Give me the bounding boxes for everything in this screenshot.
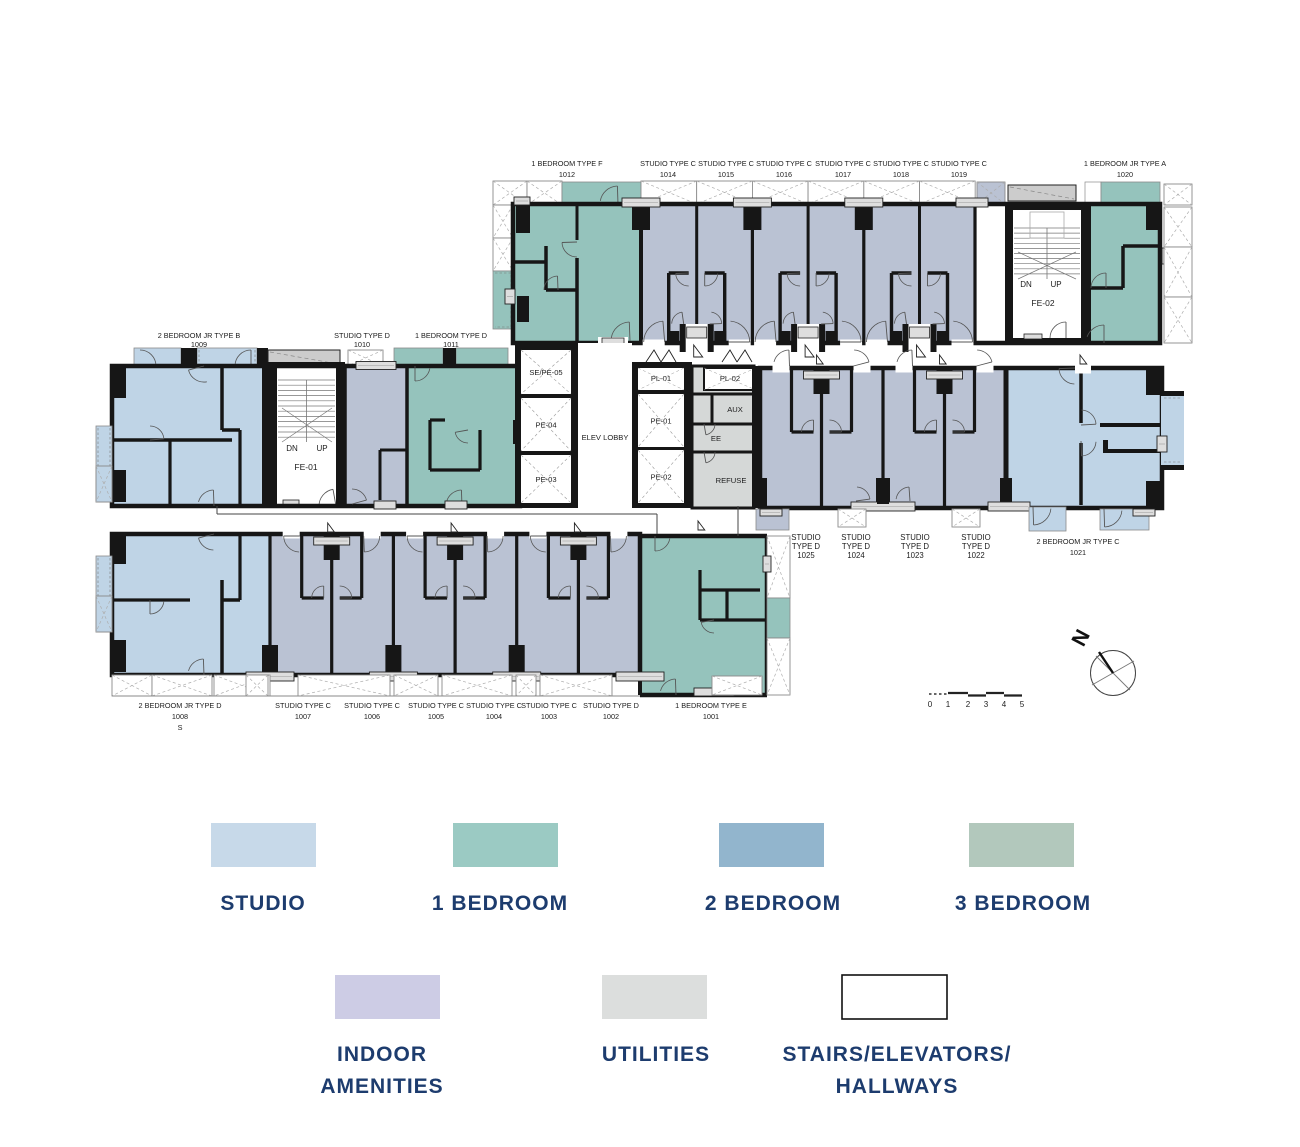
svg-text:STUDIO TYPE C: STUDIO TYPE C (408, 701, 464, 710)
svg-text:STUDIO TYPE D: STUDIO TYPE D (334, 331, 390, 340)
svg-text:3 BEDROOM: 3 BEDROOM (955, 892, 1091, 915)
svg-text:STUDIO: STUDIO (900, 533, 929, 542)
svg-text:TYPE D: TYPE D (962, 542, 991, 551)
svg-text:1 BEDROOM TYPE F: 1 BEDROOM TYPE F (531, 159, 603, 168)
svg-text:UTILITIES: UTILITIES (602, 1043, 710, 1066)
svg-text:2 BEDROOM JR TYPE D: 2 BEDROOM JR TYPE D (139, 701, 222, 710)
svg-text:STUDIO TYPE C: STUDIO TYPE C (698, 159, 754, 168)
svg-text:1010: 1010 (354, 340, 370, 349)
svg-text:1008: 1008 (172, 712, 188, 721)
svg-text:REFUSE: REFUSE (716, 476, 747, 485)
svg-text:STUDIO: STUDIO (791, 533, 820, 542)
svg-text:EE: EE (711, 434, 721, 443)
svg-text:STUDIO TYPE C: STUDIO TYPE C (521, 701, 577, 710)
svg-text:1012: 1012 (559, 170, 575, 179)
svg-text:FE-02: FE-02 (1031, 298, 1054, 308)
svg-text:PE-03: PE-03 (535, 475, 556, 484)
svg-text:1021: 1021 (1070, 548, 1086, 557)
svg-text:1003: 1003 (541, 712, 557, 721)
svg-text:2 BEDROOM JR TYPE B: 2 BEDROOM JR TYPE B (158, 331, 241, 340)
svg-text:1001: 1001 (703, 712, 719, 721)
svg-text:FE-01: FE-01 (294, 462, 317, 472)
svg-text:STUDIO TYPE C: STUDIO TYPE C (640, 159, 696, 168)
svg-text:0: 0 (928, 700, 933, 709)
svg-text:INDOOR: INDOOR (337, 1043, 427, 1066)
svg-text:1016: 1016 (776, 170, 792, 179)
svg-text:1 BEDROOM JR TYPE A: 1 BEDROOM JR TYPE A (1084, 159, 1166, 168)
svg-text:4: 4 (1002, 700, 1007, 709)
svg-text:PE-02: PE-02 (650, 473, 671, 482)
svg-text:1018: 1018 (893, 170, 909, 179)
svg-text:2 BEDROOM JR TYPE C: 2 BEDROOM JR TYPE C (1037, 537, 1120, 546)
svg-text:STAIRS/ELEVATORS/: STAIRS/ELEVATORS/ (783, 1043, 1012, 1066)
svg-text:STUDIO: STUDIO (961, 533, 990, 542)
svg-text:TYPE D: TYPE D (792, 542, 821, 551)
svg-text:1017: 1017 (835, 170, 851, 179)
svg-text:2: 2 (966, 700, 971, 709)
svg-text:2 BEDROOM: 2 BEDROOM (705, 892, 841, 915)
svg-text:STUDIO TYPE C: STUDIO TYPE C (756, 159, 812, 168)
svg-text:HALLWAYS: HALLWAYS (836, 1075, 959, 1098)
svg-text:DN: DN (286, 444, 298, 453)
svg-text:PE-01: PE-01 (650, 417, 671, 426)
svg-text:PE-04: PE-04 (535, 421, 556, 430)
svg-text:1022: 1022 (967, 551, 984, 560)
svg-text:SE/PE-05: SE/PE-05 (529, 368, 562, 377)
svg-text:AMENITIES: AMENITIES (320, 1075, 443, 1098)
svg-text:STUDIO: STUDIO (220, 892, 305, 915)
svg-text:STUDIO TYPE C: STUDIO TYPE C (873, 159, 929, 168)
svg-text:1007: 1007 (295, 712, 311, 721)
svg-text:STUDIO TYPE C: STUDIO TYPE C (344, 701, 400, 710)
svg-text:1015: 1015 (718, 170, 734, 179)
svg-text:1006: 1006 (364, 712, 380, 721)
svg-text:PL-02: PL-02 (720, 374, 740, 383)
svg-text:3: 3 (984, 700, 989, 709)
svg-text:TYPE D: TYPE D (901, 542, 930, 551)
svg-text:1 BEDROOM: 1 BEDROOM (432, 892, 568, 915)
svg-text:1002: 1002 (603, 712, 619, 721)
svg-text:1 BEDROOM TYPE E: 1 BEDROOM TYPE E (675, 701, 747, 710)
svg-text:STUDIO TYPE C: STUDIO TYPE C (931, 159, 987, 168)
svg-text:1025: 1025 (797, 551, 815, 560)
svg-text:1020: 1020 (1117, 170, 1133, 179)
svg-text:STUDIO TYPE C: STUDIO TYPE C (466, 701, 522, 710)
svg-text:1004: 1004 (486, 712, 502, 721)
svg-text:1019: 1019 (951, 170, 967, 179)
svg-text:1 BEDROOM TYPE D: 1 BEDROOM TYPE D (415, 331, 487, 340)
svg-text:1024: 1024 (847, 551, 865, 560)
svg-text:ELEV LOBBY: ELEV LOBBY (582, 433, 629, 442)
svg-text:1005: 1005 (428, 712, 444, 721)
svg-text:1023: 1023 (906, 551, 923, 560)
svg-text:1014: 1014 (660, 170, 676, 179)
svg-text:TYPE D: TYPE D (842, 542, 871, 551)
svg-text:5: 5 (1020, 700, 1025, 709)
svg-text:1: 1 (946, 700, 951, 709)
svg-text:STUDIO TYPE D: STUDIO TYPE D (583, 701, 639, 710)
svg-text:STUDIO TYPE C: STUDIO TYPE C (815, 159, 871, 168)
svg-text:UP: UP (316, 444, 327, 453)
svg-text:STUDIO TYPE C: STUDIO TYPE C (275, 701, 331, 710)
svg-text:S: S (178, 723, 183, 732)
svg-text:DN: DN (1020, 280, 1032, 289)
svg-text:AUX: AUX (727, 405, 743, 414)
svg-text:UP: UP (1050, 280, 1061, 289)
svg-text:STUDIO: STUDIO (841, 533, 870, 542)
